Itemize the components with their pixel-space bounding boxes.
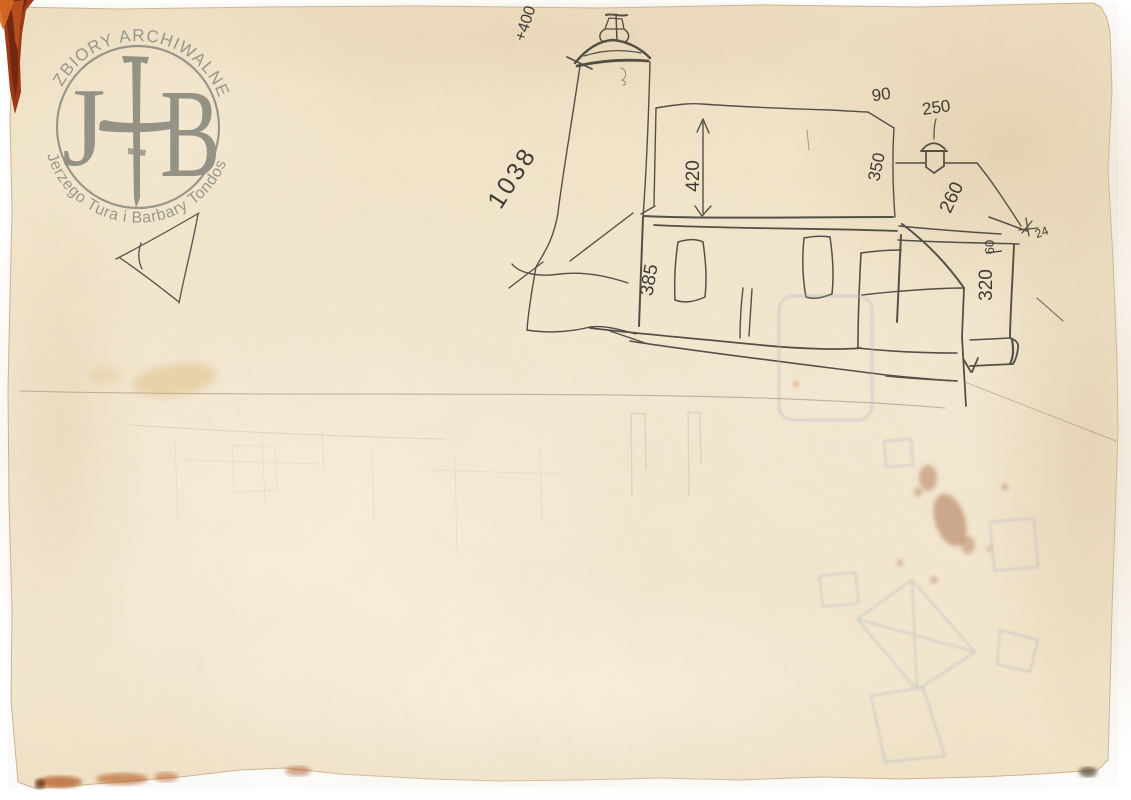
svg-text:250: 250	[921, 96, 952, 119]
svg-text:J: J	[62, 66, 106, 190]
svg-text:320: 320	[976, 269, 997, 301]
svg-text:420: 420	[683, 160, 704, 192]
svg-text:B: B	[160, 64, 221, 204]
svg-text:90: 90	[871, 84, 892, 105]
